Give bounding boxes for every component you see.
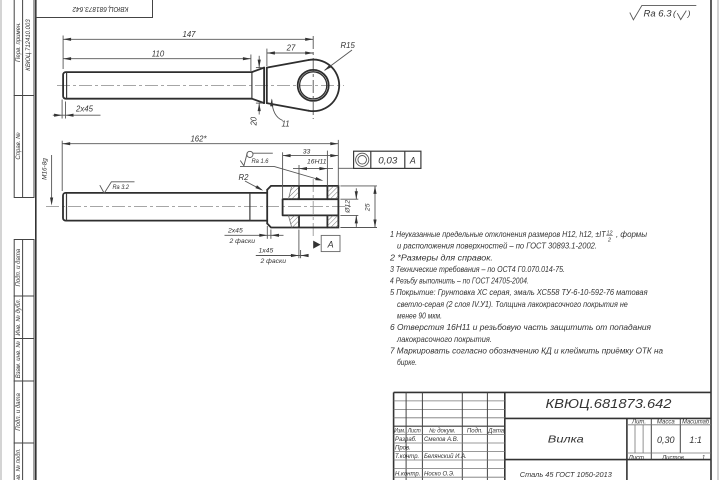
- svg-text:Подп. и дата: Подп. и дата: [16, 393, 22, 431]
- svg-text:и расположения поверхностей –: и расположения поверхностей – по ГОСТ 30…: [397, 241, 597, 251]
- svg-text:Смелов А.В.: Смелов А.В.: [424, 437, 458, 443]
- svg-text:Вилка: Вилка: [548, 435, 585, 446]
- svg-text:7 Маркировать согласно обознач: 7 Маркировать согласно обозначению КД и …: [390, 345, 663, 355]
- svg-text:2: 2: [607, 238, 611, 244]
- svg-text:0,30: 0,30: [657, 435, 675, 445]
- svg-text:Белянский И.А.: Белянский И.А.: [424, 453, 467, 460]
- svg-text:R2: R2: [239, 173, 250, 182]
- svg-text:Пров.: Пров.: [395, 446, 411, 452]
- svg-text:1 Неуказанные предельные откло: 1 Неуказанные предельные отклонения разм…: [390, 229, 607, 239]
- svg-text:Ra 3.2: Ra 3.2: [113, 184, 130, 191]
- svg-text:Т.контр.: Т.контр.: [395, 454, 419, 460]
- svg-text:Справ. №: Справ. №: [15, 132, 22, 160]
- svg-text:2 фаски: 2 фаски: [260, 258, 287, 265]
- svg-text:КВЮЦ.681873.642: КВЮЦ.681873.642: [72, 5, 129, 14]
- svg-text:1х45: 1х45: [259, 248, 274, 255]
- svg-text:2 *Размеры для справок.: 2 *Размеры для справок.: [389, 252, 493, 262]
- svg-text:R15: R15: [341, 41, 356, 50]
- svg-text:Н.контр.: Н.контр.: [395, 471, 420, 477]
- svg-text:Инв. № дубл.: Инв. № дубл.: [15, 299, 22, 336]
- svg-text:Сталь 45 ГОСТ 1050-2013: Сталь 45 ГОСТ 1050-2013: [520, 470, 613, 479]
- svg-text:Лист: Лист: [407, 429, 421, 435]
- svg-text:147: 147: [182, 30, 196, 39]
- svg-text:Носко О.Э.: Носко О.Э.: [424, 471, 455, 477]
- svg-text:11: 11: [282, 120, 290, 129]
- svg-text:27: 27: [286, 44, 296, 53]
- svg-text:5 Покрытие: Грунтовка ХС серая: 5 Покрытие: Грунтовка ХС серая, эмаль ХС…: [390, 288, 648, 298]
- svg-text:лакокрасочного покрытия.: лакокрасочного покрытия.: [396, 334, 492, 344]
- svg-text:бирке.: бирке.: [397, 357, 417, 367]
- svg-text:Взам. инв. №: Взам. инв. №: [15, 341, 22, 379]
- svg-text:Дата: Дата: [487, 429, 504, 435]
- svg-text:А: А: [327, 239, 334, 249]
- svg-text:КВЮЦ.712410.003: КВЮЦ.712410.003: [26, 19, 32, 71]
- svg-text:менее 90 мкм.: менее 90 мкм.: [397, 311, 442, 321]
- svg-text:Листов: Листов: [661, 455, 684, 461]
- svg-text:20: 20: [249, 116, 258, 126]
- svg-text:3 Технические требования – по: 3 Технические требования – по ОСТ4 Г0.07…: [390, 264, 565, 274]
- svg-text:КВЮЦ.681873.642: КВЮЦ.681873.642: [546, 397, 672, 411]
- svg-text:0,03: 0,03: [378, 155, 397, 165]
- svg-text:Перв. примен.: Перв. примен.: [16, 22, 22, 62]
- svg-text:Лист: Лист: [628, 455, 644, 461]
- svg-text:6 Отверстия 16Н11 и резьбову: 6 Отверстия 16Н11 и резьбовую часть защи…: [390, 322, 651, 332]
- svg-text:, формы: , формы: [616, 230, 647, 239]
- svg-text:А: А: [409, 155, 416, 165]
- svg-text:16Н11: 16Н11: [307, 159, 327, 166]
- svg-text:25: 25: [365, 203, 372, 212]
- svg-text:): ): [687, 9, 691, 19]
- svg-text:2х45: 2х45: [227, 227, 243, 234]
- svg-text:162*: 162*: [190, 134, 207, 143]
- svg-text:Разраб.: Разраб.: [395, 437, 417, 443]
- svg-text:Изм.: Изм.: [394, 429, 405, 435]
- svg-text:2х45: 2х45: [75, 104, 94, 113]
- svg-text:1:1: 1:1: [689, 435, 702, 445]
- svg-text:(: (: [673, 9, 677, 19]
- svg-text:Ø12: Ø12: [345, 200, 352, 214]
- svg-text:М16-8g: М16-8g: [41, 158, 48, 180]
- svg-text:1: 1: [702, 455, 705, 461]
- svg-text:Инв. № подл.: Инв. № подл.: [15, 448, 22, 480]
- svg-text:светло-серая (2 слоя IV.У1).: светло-серая (2 слоя IV.У1). Толщина лак…: [397, 299, 628, 309]
- svg-text:110: 110: [152, 49, 165, 58]
- svg-text:Лит.: Лит.: [631, 419, 646, 425]
- svg-text:4 Резьбу выполнить – по ГОСТ 2: 4 Резьбу выполнить – по ГОСТ 24705-2004.: [390, 276, 529, 286]
- svg-text:№ докум.: № докум.: [429, 428, 455, 435]
- svg-text:33: 33: [303, 148, 311, 155]
- svg-text:Ra 1.6: Ra 1.6: [252, 158, 269, 165]
- svg-text:Подп.: Подп.: [467, 429, 483, 435]
- svg-text:Подп. и дата: Подп. и дата: [16, 248, 22, 286]
- svg-text:2 фаски: 2 фаски: [229, 238, 256, 245]
- svg-text:Масштаб: Масштаб: [682, 419, 710, 425]
- svg-text:Ra 6.3: Ra 6.3: [644, 9, 673, 20]
- svg-text:Масса: Масса: [657, 419, 675, 425]
